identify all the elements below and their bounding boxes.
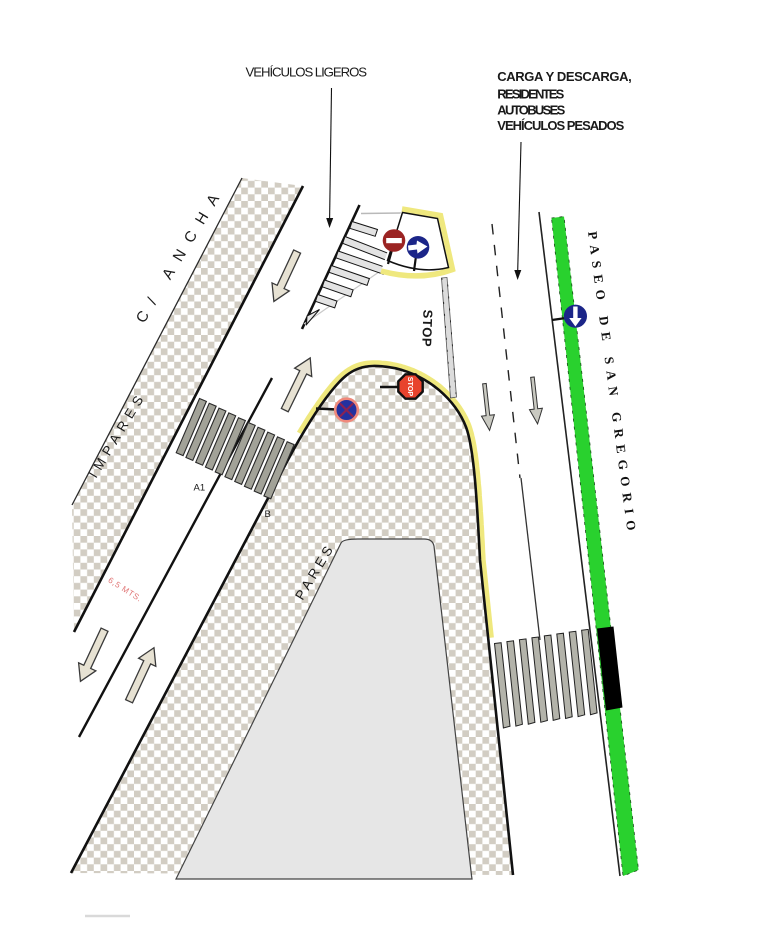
svg-text:B: B bbox=[265, 509, 271, 520]
svg-text:AUTOBUSES: AUTOBUSES bbox=[497, 103, 565, 118]
svg-text:CARGA Y DESCARGA,: CARGA Y DESCARGA, bbox=[497, 69, 632, 84]
svg-text:STOP: STOP bbox=[406, 377, 415, 397]
svg-text:VEHÍCULOS PESADOS: VEHÍCULOS PESADOS bbox=[497, 118, 624, 133]
svg-text:STOP: STOP bbox=[419, 309, 435, 347]
svg-text:VEHÍCULOS LIGEROS: VEHÍCULOS LIGEROS bbox=[246, 65, 368, 80]
svg-text:A1: A1 bbox=[194, 483, 206, 494]
svg-text:RESIDENTES: RESIDENTES bbox=[497, 87, 564, 102]
